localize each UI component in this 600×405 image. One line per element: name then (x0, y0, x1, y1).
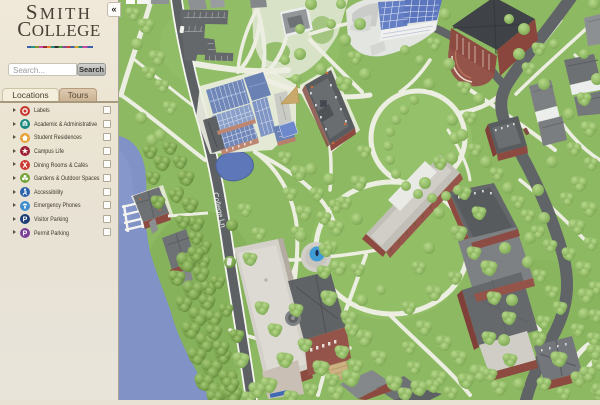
svg-text:P: P (23, 217, 28, 224)
svg-text:P: P (23, 230, 28, 237)
